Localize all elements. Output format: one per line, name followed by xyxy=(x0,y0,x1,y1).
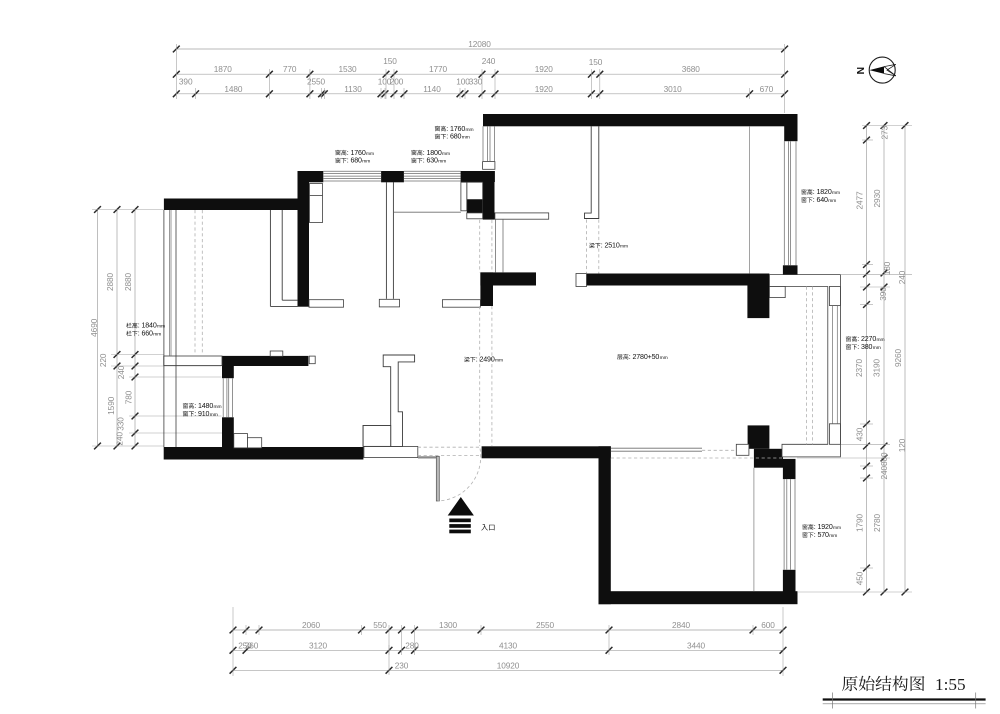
svg-text:3440: 3440 xyxy=(687,640,706,650)
svg-text:mm: mm xyxy=(873,346,881,351)
svg-text:430: 430 xyxy=(855,427,865,441)
svg-text:280: 280 xyxy=(405,640,419,650)
svg-text:1530: 1530 xyxy=(338,64,357,74)
svg-text:390: 390 xyxy=(179,77,193,87)
svg-text:: 680: : 680 xyxy=(347,157,362,165)
svg-text:2550: 2550 xyxy=(536,620,555,630)
svg-text:3680: 3680 xyxy=(682,64,701,74)
svg-text:1130: 1130 xyxy=(344,84,362,94)
svg-text:2477: 2477 xyxy=(855,191,865,210)
svg-text:: 660: : 660 xyxy=(138,330,153,338)
svg-text:: 910: : 910 xyxy=(194,410,209,418)
svg-text:220: 220 xyxy=(98,353,108,367)
svg-text:600: 600 xyxy=(761,620,775,630)
svg-text:mm: mm xyxy=(832,191,840,196)
svg-text:: 1800: : 1800 xyxy=(423,149,442,157)
svg-text:1300: 1300 xyxy=(439,620,458,630)
svg-text:: 1840: : 1840 xyxy=(138,322,157,330)
svg-text:mm: mm xyxy=(833,526,841,531)
svg-text:2840: 2840 xyxy=(672,620,691,630)
svg-text:770: 770 xyxy=(283,64,297,74)
svg-text:N: N xyxy=(854,67,866,75)
svg-text:240: 240 xyxy=(482,56,496,66)
svg-text:2880: 2880 xyxy=(123,272,133,291)
svg-text:: 1760: : 1760 xyxy=(347,149,366,157)
svg-text:2930: 2930 xyxy=(872,189,882,208)
svg-text:: 2510: : 2510 xyxy=(601,242,620,250)
svg-text:: 640: : 640 xyxy=(813,196,828,204)
svg-text:mm: mm xyxy=(466,128,474,133)
svg-text:780: 780 xyxy=(123,390,133,404)
svg-text:240800: 240800 xyxy=(879,452,889,480)
svg-text:1:55: 1:55 xyxy=(935,675,966,694)
svg-text:180: 180 xyxy=(882,261,892,275)
svg-text:240: 240 xyxy=(116,365,126,379)
svg-text:: 2490: : 2490 xyxy=(476,356,495,364)
svg-text:mm: mm xyxy=(157,325,165,330)
svg-text:mm: mm xyxy=(438,160,446,165)
svg-text:150: 150 xyxy=(589,57,603,67)
svg-text:1480: 1480 xyxy=(224,84,243,94)
svg-text:mm: mm xyxy=(828,199,836,204)
svg-text:mm: mm xyxy=(442,152,450,157)
svg-text:273: 273 xyxy=(879,125,889,139)
svg-text:2780: 2780 xyxy=(872,513,882,532)
svg-text:: 570: : 570 xyxy=(814,531,829,539)
svg-text:240: 240 xyxy=(897,270,907,284)
svg-text:450: 450 xyxy=(855,571,865,585)
svg-text:200: 200 xyxy=(390,77,404,87)
svg-text:9260: 9260 xyxy=(893,348,903,367)
svg-text:120: 120 xyxy=(897,438,907,452)
svg-text:1920: 1920 xyxy=(535,64,554,74)
svg-text:: 2780+50: : 2780+50 xyxy=(629,353,660,361)
svg-text:330: 330 xyxy=(116,417,126,431)
svg-text:3010: 3010 xyxy=(664,84,683,94)
svg-text:mm: mm xyxy=(829,534,837,539)
svg-text:mm: mm xyxy=(214,405,222,410)
svg-text:mm: mm xyxy=(362,160,370,165)
svg-text:mm: mm xyxy=(153,333,161,338)
svg-text:2370: 2370 xyxy=(854,358,864,377)
svg-text:: 680: : 680 xyxy=(446,133,461,141)
svg-text:550: 550 xyxy=(373,620,387,630)
svg-text:240: 240 xyxy=(115,432,125,446)
svg-text:3120: 3120 xyxy=(309,640,328,650)
svg-text:1870: 1870 xyxy=(214,64,233,74)
svg-text:mm: mm xyxy=(660,356,668,361)
svg-text:: 1480: : 1480 xyxy=(194,402,213,410)
svg-text:mm: mm xyxy=(877,338,885,343)
svg-text:1790: 1790 xyxy=(855,513,865,532)
svg-text:mm: mm xyxy=(462,136,470,141)
svg-text:670: 670 xyxy=(760,84,774,94)
svg-text:3190: 3190 xyxy=(872,358,882,377)
svg-text:mm: mm xyxy=(620,245,628,250)
svg-text:230: 230 xyxy=(395,660,409,670)
svg-text:: 380: : 380 xyxy=(857,343,872,351)
svg-text:150: 150 xyxy=(383,56,397,66)
svg-text:2880: 2880 xyxy=(105,272,115,291)
svg-text:1590: 1590 xyxy=(106,396,116,415)
svg-text:1920: 1920 xyxy=(535,84,554,94)
svg-text:330: 330 xyxy=(469,77,483,87)
svg-text:1770: 1770 xyxy=(429,64,448,74)
svg-text:390: 390 xyxy=(878,287,888,301)
svg-text:mm: mm xyxy=(210,413,218,418)
svg-text:10920: 10920 xyxy=(497,660,520,670)
svg-text:4130: 4130 xyxy=(499,640,518,650)
svg-text:260: 260 xyxy=(245,640,259,650)
svg-text:: 1760: : 1760 xyxy=(446,125,465,133)
svg-text:: 630: : 630 xyxy=(423,157,438,165)
svg-text:2060: 2060 xyxy=(302,620,321,630)
svg-text:mm: mm xyxy=(495,359,503,364)
svg-text:: 1820: : 1820 xyxy=(813,188,832,196)
svg-text:1140: 1140 xyxy=(423,84,441,94)
svg-text:12080: 12080 xyxy=(468,39,491,49)
svg-text:mm: mm xyxy=(366,152,374,157)
svg-text:: 2270: : 2270 xyxy=(857,335,876,343)
svg-text:4690: 4690 xyxy=(89,318,99,337)
svg-text:: 1920: : 1920 xyxy=(814,523,833,531)
